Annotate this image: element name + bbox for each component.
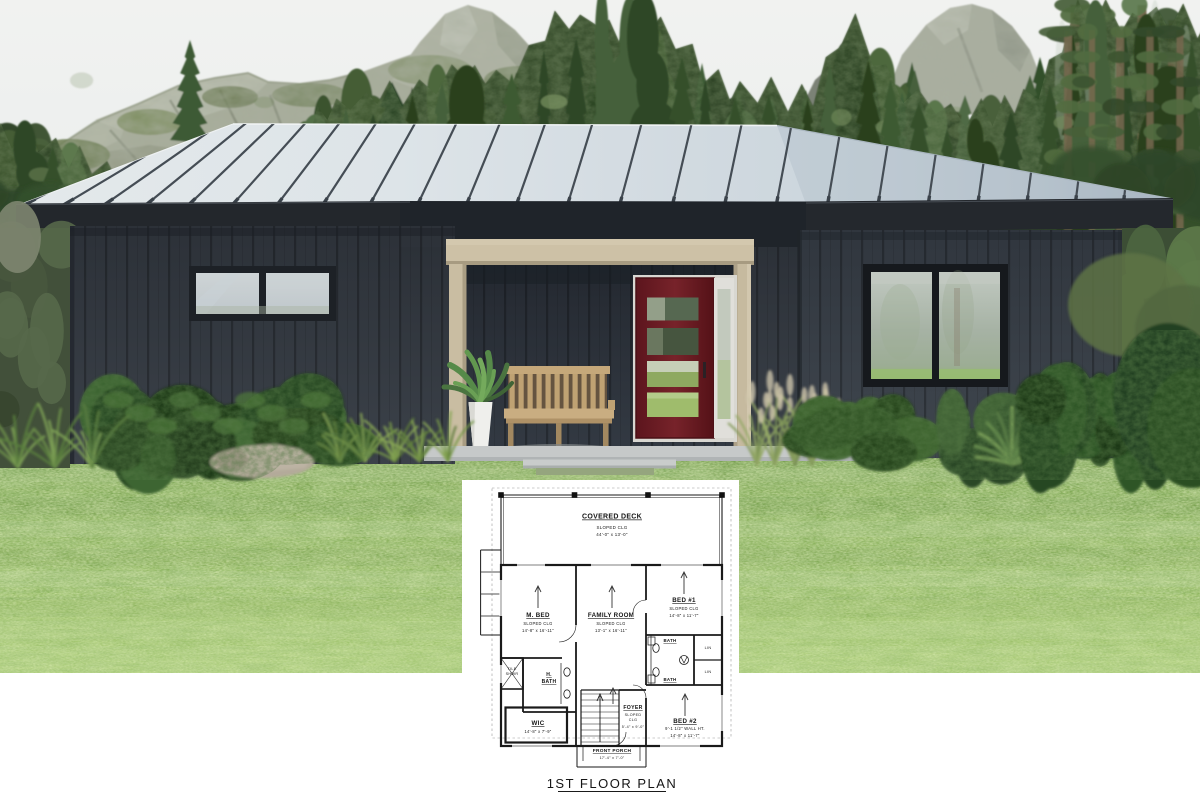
svg-text:FRONT PORCH: FRONT PORCH: [593, 748, 632, 754]
svg-text:SHWR: SHWR: [506, 672, 519, 676]
svg-text:BATH: BATH: [542, 679, 557, 685]
svg-text:BED #2: BED #2: [673, 718, 697, 725]
svg-text:SLOPED: SLOPED: [625, 713, 642, 717]
svg-text:BATH: BATH: [663, 638, 676, 643]
svg-text:SLOPED CLG: SLOPED CLG: [596, 621, 625, 626]
svg-text:LIN: LIN: [705, 646, 712, 650]
svg-text:BED #1: BED #1: [672, 597, 696, 604]
svg-text:BATH: BATH: [663, 677, 676, 682]
svg-text:SLOPED CLG: SLOPED CLG: [669, 606, 698, 611]
svg-text:1ST FLOOR PLAN: 1ST FLOOR PLAN: [547, 776, 678, 791]
svg-text:WIC: WIC: [532, 720, 545, 727]
svg-text:13'-1" x 16'-11": 13'-1" x 16'-11": [595, 628, 627, 633]
svg-text:14'-8" x 11'-7": 14'-8" x 11'-7": [670, 733, 700, 738]
svg-text:SLOPED CLG: SLOPED CLG: [523, 621, 552, 626]
svg-text:TILE: TILE: [507, 667, 516, 671]
svg-text:14'-8" x 11'-7": 14'-8" x 11'-7": [669, 613, 699, 618]
svg-text:CLG: CLG: [629, 718, 637, 722]
svg-text:44'-0" x 13'-0": 44'-0" x 13'-0": [596, 532, 628, 537]
svg-text:LIN: LIN: [705, 670, 712, 674]
svg-text:COVERED DECK: COVERED DECK: [582, 514, 642, 521]
svg-text:FOYER: FOYER: [623, 705, 642, 711]
svg-text:M. BED: M. BED: [526, 612, 550, 619]
svg-text:SLOPED CLG: SLOPED CLG: [596, 525, 627, 530]
svg-text:9'-1 1/2" WALL HT.: 9'-1 1/2" WALL HT.: [665, 726, 705, 731]
svg-text:14'-8" x 7'-9": 14'-8" x 7'-9": [524, 729, 551, 734]
svg-text:FAMILY ROOM: FAMILY ROOM: [588, 612, 634, 619]
svg-text:17'-4" x 7'-0": 17'-4" x 7'-0": [600, 756, 625, 760]
svg-text:H.: H.: [546, 672, 552, 678]
svg-text:14'-8" x 16'-11": 14'-8" x 16'-11": [522, 628, 554, 633]
svg-text:5'-4" x 9'-0": 5'-4" x 9'-0": [622, 725, 645, 729]
